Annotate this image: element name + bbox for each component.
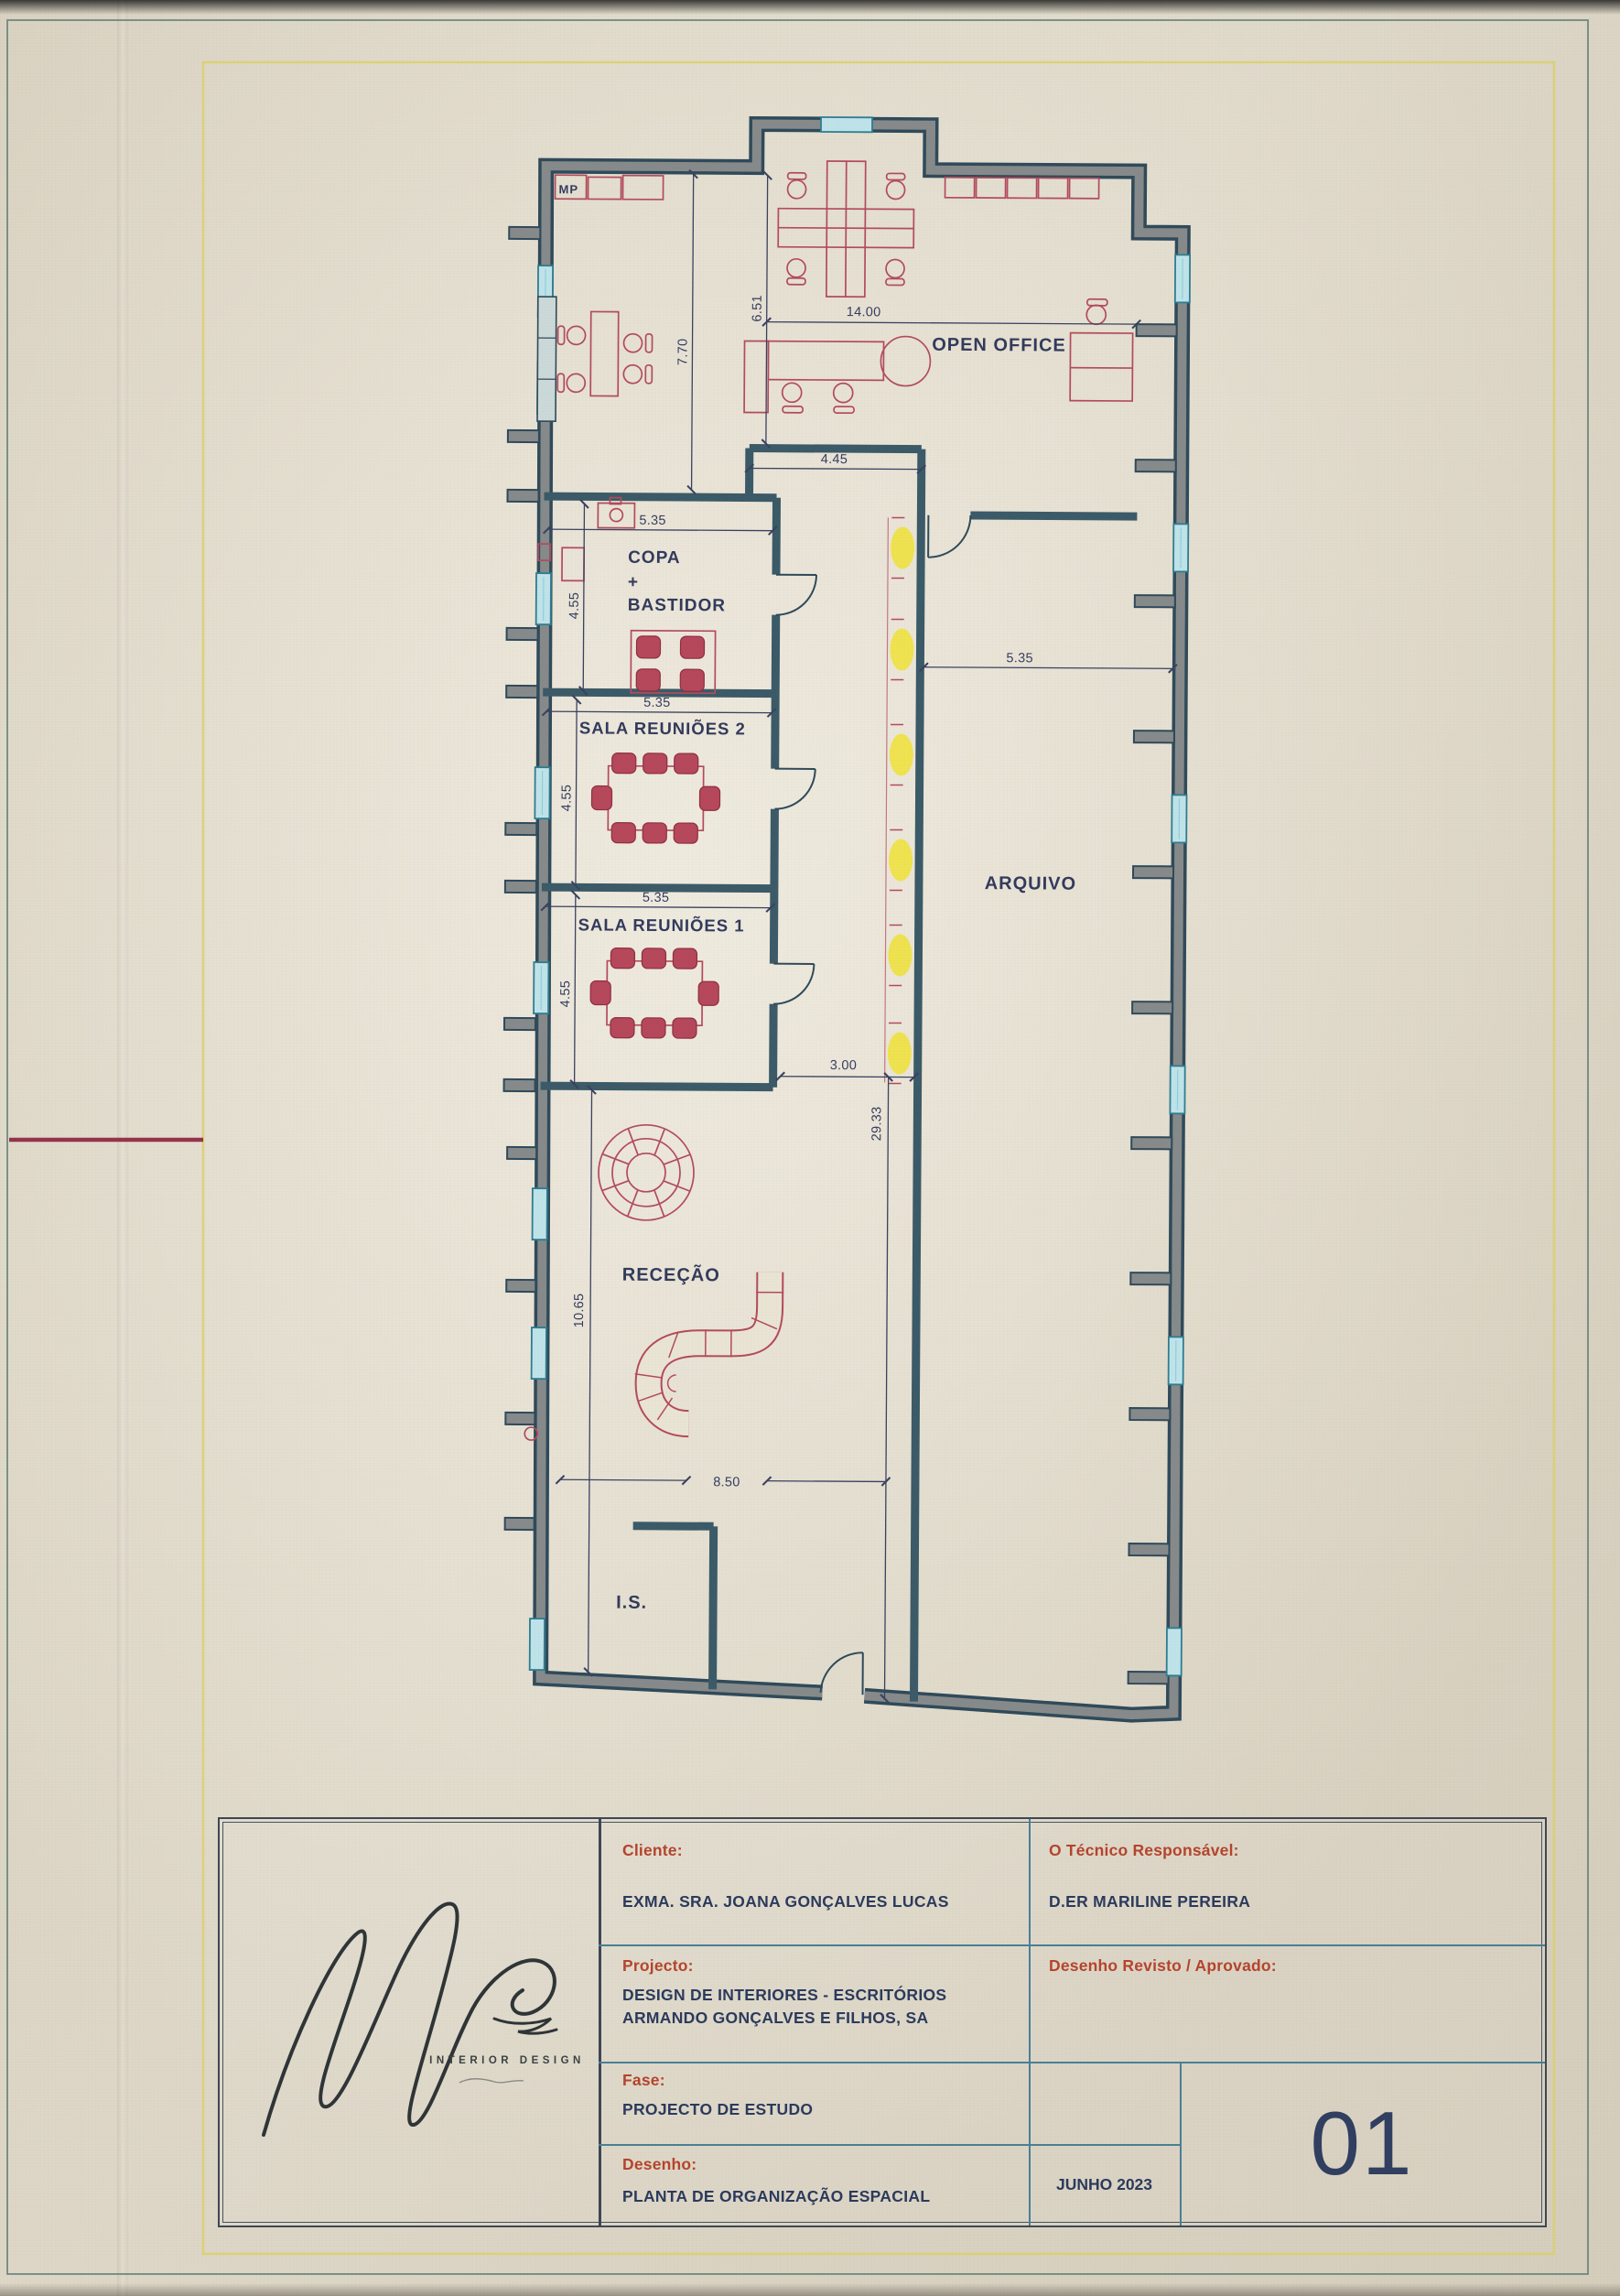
label-copa-3: BASTIDOR — [628, 596, 726, 616]
dim-corridor-w: 3.00 — [830, 1058, 858, 1073]
date-cell: JUNHO 2023 — [1029, 2144, 1180, 2225]
dim-arquivo-w: 5.35 — [1006, 651, 1033, 666]
dim-sala2-w: 5.35 — [643, 696, 671, 710]
photo-top-edge — [0, 0, 1620, 15]
photo-bottom-edge — [0, 2283, 1620, 2296]
open-office-furniture — [554, 159, 1134, 415]
corridor-highlighter-marks — [885, 517, 915, 1083]
designer-signature: INTERIOR DESIGN — [220, 1819, 599, 2226]
label-copa-2: + — [628, 573, 639, 592]
dim-sala1-w: 5.35 — [643, 891, 670, 905]
dim-7-70: 7.70 — [675, 339, 690, 366]
dim-8-50: 8.50 — [713, 1475, 740, 1489]
room-labels: OPEN OFFICE COPA + BASTIDOR SALA REUNIÕE… — [550, 182, 1081, 1615]
label-copa-1: COPA — [628, 548, 681, 568]
cliente-value: EXMA. SRA. JOANA GONÇALVES LUCAS — [622, 1890, 949, 1913]
sala2-furniture — [591, 753, 720, 843]
revisto-label: Desenho Revisto / Aprovado: — [1049, 1956, 1277, 1976]
dimension-labels: 7.70 6.51 14.00 4.45 5.35 4.55 5.35 4.55… — [556, 294, 1035, 1492]
doors — [770, 514, 971, 1695]
logo-subscript-scribble — [459, 2079, 524, 2083]
open-office-cabinet — [537, 297, 556, 421]
projecto-label: Projecto: — [622, 1956, 694, 1976]
desenho-value: PLANTA DE ORGANIZAÇÃO ESPACIAL — [622, 2185, 930, 2208]
dimension-lines — [541, 173, 1176, 1700]
scanned-floor-plan-sheet: 7.70 6.51 14.00 4.45 5.35 4.55 5.35 4.55… — [0, 0, 1620, 2296]
sala1-furniture — [590, 948, 719, 1038]
sheet-number: 01 — [1180, 2062, 1544, 2225]
dim-copa-w: 5.35 — [639, 514, 666, 528]
cliente-label: Cliente: — [622, 1841, 683, 1860]
tecnico-label: O Técnico Responsável: — [1049, 1841, 1239, 1860]
label-mp: MP — [559, 182, 579, 196]
label-rececao: RECEÇÃO — [622, 1264, 720, 1286]
fase-label: Fase: — [622, 2071, 665, 2090]
windows — [530, 115, 1191, 1675]
grid-v-signature — [599, 1819, 601, 2226]
title-block: INTERIOR DESIGN Cliente: EXMA. SRA. JOAN… — [218, 1817, 1547, 2227]
desenho-label: Desenho: — [622, 2155, 697, 2174]
dim-sala1-h: 4.55 — [558, 980, 573, 1008]
dim-sala2-h: 4.55 — [559, 785, 574, 812]
window-mullions — [539, 255, 1183, 1381]
dim-29-33: 29.33 — [869, 1107, 884, 1142]
label-is: I.S. — [616, 1593, 647, 1613]
projecto-value: DESIGN DE INTERIORES - ESCRITÓRIOS ARMAN… — [622, 1984, 1007, 2030]
dim-14-00: 14.00 — [847, 305, 881, 319]
dim-copa-h: 4.55 — [567, 592, 582, 620]
label-open-office: OPEN OFFICE — [932, 335, 1066, 356]
logo-text: INTERIOR DESIGN — [429, 2055, 585, 2066]
dim-6-51: 6.51 — [751, 295, 765, 322]
fase-value: PROJECTO DE ESTUDO — [622, 2098, 813, 2121]
signature-cell: INTERIOR DESIGN — [220, 1819, 599, 2226]
label-arquivo: ARQUIVO — [985, 873, 1076, 894]
grid-h1 — [599, 1944, 1545, 1946]
label-sala2: SALA REUNIÕES 2 — [579, 718, 746, 738]
tecnico-value: D.ER MARILINE PEREIRA — [1049, 1890, 1250, 1913]
label-sala1: SALA REUNIÕES 1 — [578, 915, 745, 935]
dim-10-65: 10.65 — [572, 1294, 587, 1328]
interior-walls — [536, 447, 1137, 1703]
dim-4-45: 4.45 — [821, 452, 848, 467]
